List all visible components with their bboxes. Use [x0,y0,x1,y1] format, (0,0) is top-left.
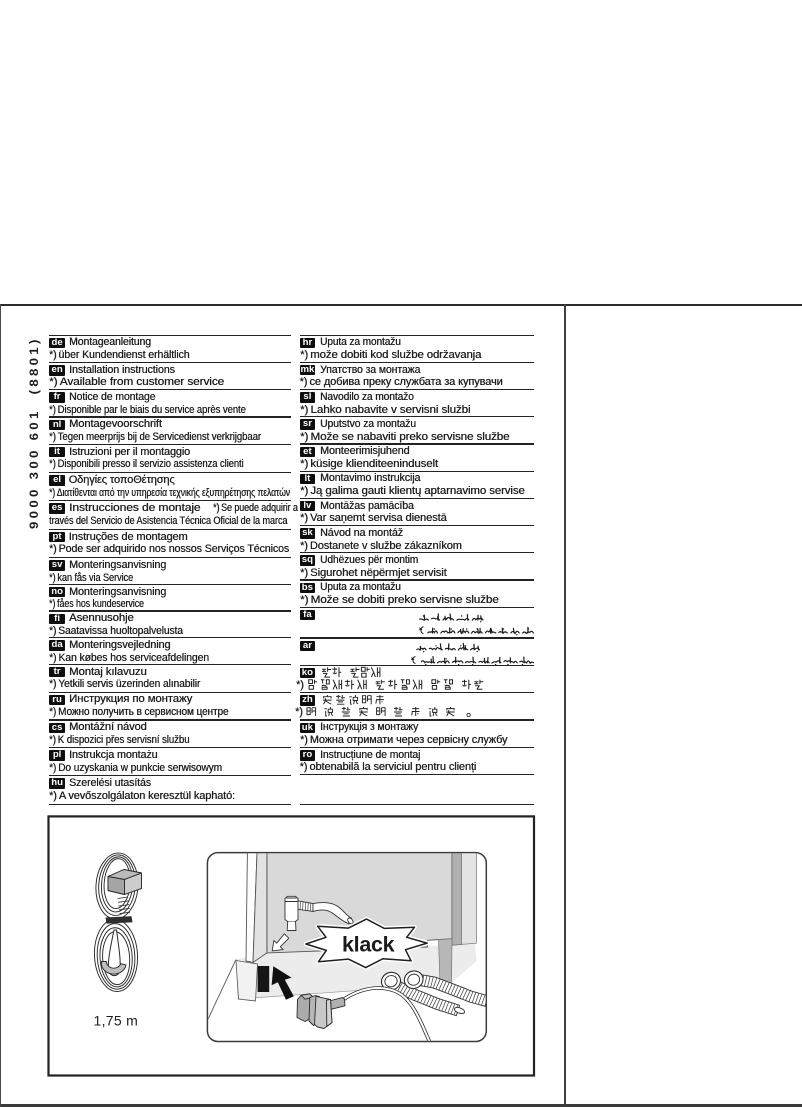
svg-text:1,75 m: 1,75 m [94,1013,139,1029]
svg-text:klack: klack [342,933,395,957]
